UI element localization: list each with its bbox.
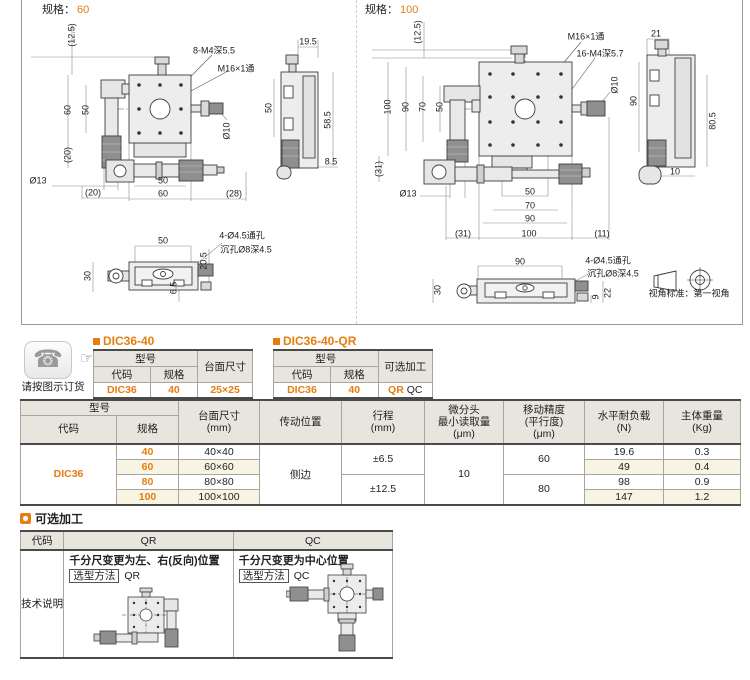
table-row: DIC36 40 40×40 侧边 ±6.5 10 60 19.6 0.3 bbox=[21, 444, 741, 460]
dim-label: 20.5 bbox=[200, 252, 209, 270]
column-header: QC bbox=[233, 531, 392, 550]
dim-label: 8-M4深5.5 bbox=[193, 47, 235, 56]
dim-label: 90 bbox=[630, 96, 639, 106]
accuracy-value: 60 bbox=[504, 444, 585, 475]
dim-label: M16×1通 bbox=[218, 65, 255, 74]
weight-value: 1.2 bbox=[664, 489, 741, 505]
column-header: 传动位置 bbox=[260, 400, 342, 444]
weight-value: 0.3 bbox=[664, 444, 741, 460]
column-header: 水平耐负载(N) bbox=[585, 400, 664, 444]
dim-label: 90 bbox=[525, 215, 535, 224]
load-value: 49 bbox=[585, 459, 664, 474]
weight-value: 0.4 bbox=[664, 459, 741, 474]
column-header: 规格 bbox=[117, 416, 179, 444]
dim-label: 30 bbox=[434, 285, 443, 295]
size-value: 40×40 bbox=[179, 444, 260, 460]
spec-value: 60 bbox=[117, 459, 179, 474]
spec100-drawing bbox=[357, 0, 743, 324]
table-row: DIC36 40 QR QC bbox=[274, 383, 433, 399]
dim-label: 50 bbox=[158, 237, 168, 246]
phone-icon: ☎ bbox=[24, 341, 72, 379]
weight-value: 0.9 bbox=[664, 474, 741, 489]
dim-label: 22 bbox=[604, 288, 613, 298]
table-row: 80 80×80 ±12.5 80 98 0.9 bbox=[21, 474, 741, 489]
dim-label: Ø10 bbox=[611, 76, 620, 93]
column-header: 主体重量(Kg) bbox=[664, 400, 741, 444]
column-header: 台面尺寸(mm) bbox=[179, 400, 260, 444]
dim-label: 50 bbox=[158, 177, 168, 186]
dim-label: 90 bbox=[402, 102, 411, 112]
optional-section-title: 可选加工 bbox=[20, 512, 83, 525]
travel-value: ±6.5 bbox=[342, 444, 425, 475]
column-header: 型号 bbox=[274, 350, 379, 367]
model-table-1: DIC36-40 型号 台面尺寸 代码 规格 DIC36 40 25×25 bbox=[93, 335, 254, 399]
dim-label: 8.5 bbox=[325, 158, 338, 167]
load-value: 19.6 bbox=[585, 444, 664, 460]
column-header: 规格 bbox=[150, 367, 197, 383]
bottom-view bbox=[457, 279, 588, 303]
dim-label: Ø13 bbox=[29, 177, 46, 186]
dim-label: (12.5) bbox=[68, 23, 77, 47]
dim-label: 16-M4深5.7 bbox=[576, 50, 623, 59]
dim-label: 沉孔Ø8深4.5 bbox=[220, 246, 272, 255]
dim-label: (20) bbox=[64, 147, 73, 163]
load-value: 147 bbox=[585, 489, 664, 505]
column-header: 代码 bbox=[21, 416, 117, 444]
dim-label: 4-Ø4.5通孔 bbox=[585, 257, 631, 266]
column-header: 代码 bbox=[274, 367, 331, 383]
phone-glyph: ☎ bbox=[33, 346, 63, 373]
order-note: 请按图示订货 bbox=[8, 379, 98, 394]
optional-table: 代码 QR QC 技术说明 千分尺变更为左、右(反向)位置 选型方法QR bbox=[20, 530, 393, 659]
dim-label: 19.5 bbox=[299, 38, 317, 47]
spec-value: 40 bbox=[117, 444, 179, 460]
dim-label: M16×1通 bbox=[568, 33, 605, 42]
dim-label: 60 bbox=[158, 190, 168, 199]
load-value: 98 bbox=[585, 474, 664, 489]
spec-value: 80 bbox=[117, 474, 179, 489]
option-values: QR QC bbox=[378, 383, 432, 399]
spec-value: 40 bbox=[150, 383, 197, 399]
dim-label: 9 bbox=[592, 294, 601, 299]
size-value: 25×25 bbox=[198, 383, 253, 399]
dim-label: 21 bbox=[651, 30, 661, 39]
dim-label: 沉孔Ø8深4.5 bbox=[587, 270, 639, 279]
column-header: 行程(mm) bbox=[342, 400, 425, 444]
qc-stage-drawing bbox=[286, 559, 398, 653]
model-table-2-title: DIC36-40-QR bbox=[273, 335, 434, 347]
dim-label: 80.5 bbox=[709, 112, 718, 130]
column-header: 规格 bbox=[330, 367, 378, 383]
column-header: 可选加工 bbox=[378, 350, 432, 383]
column-header: 移动精度(平行度)(μm) bbox=[504, 400, 585, 444]
side-view bbox=[277, 55, 318, 179]
qr-description: 千分尺变更为左、右(反向)位置 bbox=[69, 555, 228, 567]
side-view bbox=[639, 40, 695, 184]
size-value: 100×100 bbox=[179, 489, 260, 505]
code-value: DIC36 bbox=[274, 383, 331, 399]
qc-cell: 千分尺变更为中心位置 选型方法QC bbox=[233, 550, 392, 658]
optional-section: 代码 QR QC 技术说明 千分尺变更为左、右(反向)位置 选型方法QR bbox=[20, 530, 393, 659]
spec-value: 100 bbox=[117, 489, 179, 505]
dim-label: 10 bbox=[670, 168, 680, 177]
dim-label: 100 bbox=[384, 99, 393, 114]
bottom-view bbox=[108, 262, 213, 290]
dim-label: 50 bbox=[265, 103, 274, 113]
spec100-panel: 规格：100 bbox=[356, 0, 743, 324]
model-table-1-title: DIC36-40 bbox=[93, 335, 254, 347]
column-header: 代码 bbox=[21, 531, 64, 550]
travel-value: ±12.5 bbox=[342, 474, 425, 505]
view-standard-label: 视角标准：第一视角 bbox=[648, 290, 729, 299]
column-header: 微分头最小读取量(μm) bbox=[425, 400, 504, 444]
dim-label: 58.5 bbox=[324, 111, 333, 129]
table-row: 技术说明 千分尺变更为左、右(反向)位置 选型方法QR bbox=[21, 550, 393, 658]
front-view bbox=[101, 57, 224, 182]
row-label: 技术说明 bbox=[21, 550, 64, 658]
catalog-page: 规格：60 bbox=[0, 0, 750, 680]
table-row: DIC36 40 25×25 bbox=[94, 383, 253, 399]
dim-label: (11) bbox=[594, 230, 609, 239]
dim-label: 30 bbox=[84, 271, 93, 281]
pointing-hand-icon: ☞ bbox=[80, 349, 93, 367]
qr-cell: 千分尺变更为左、右(反向)位置 选型方法QR bbox=[64, 550, 233, 658]
dim-label: 100 bbox=[521, 230, 536, 239]
drawings-frame: 规格：60 bbox=[21, 0, 743, 325]
dim-label: (31) bbox=[455, 230, 471, 239]
dim-label: 50 bbox=[525, 188, 535, 197]
dim-label: (28) bbox=[226, 190, 242, 199]
dim-label: (31) bbox=[375, 161, 384, 177]
column-header: 型号 bbox=[21, 400, 179, 416]
dim-label: (20) bbox=[85, 189, 101, 198]
micro-value: 10 bbox=[425, 444, 504, 505]
model-table-2: DIC36-40-QR 型号 可选加工 代码 规格 DIC36 40 QR QC bbox=[273, 335, 434, 399]
square-bullet-icon bbox=[273, 338, 280, 345]
dim-label: 70 bbox=[419, 102, 428, 112]
dim-label: 90 bbox=[515, 258, 525, 267]
spec-table-section: 型号 台面尺寸(mm) 传动位置 行程(mm) 微分头最小读取量(μm) 移动精… bbox=[20, 399, 741, 506]
dim-label: 70 bbox=[525, 202, 535, 211]
column-header: 代码 bbox=[94, 367, 151, 383]
column-header: 台面尺寸 bbox=[198, 350, 253, 383]
dim-label: 6.5 bbox=[170, 282, 179, 295]
dim-label: 50 bbox=[82, 105, 91, 115]
qr-stage-drawing bbox=[92, 585, 204, 657]
spec-value: 40 bbox=[330, 383, 378, 399]
size-value: 60×60 bbox=[179, 459, 260, 474]
column-header: 型号 bbox=[94, 350, 198, 367]
front-view bbox=[424, 46, 605, 184]
section-bullet-icon bbox=[20, 513, 31, 524]
size-value: 80×80 bbox=[179, 474, 260, 489]
dim-label: Ø10 bbox=[223, 122, 232, 139]
qr-method: 选型方法QR bbox=[69, 570, 232, 583]
dim-label: 4-Ø4.5通孔 bbox=[219, 232, 265, 241]
spec-table: 型号 台面尺寸(mm) 传动位置 行程(mm) 微分头最小读取量(μm) 移动精… bbox=[20, 399, 741, 506]
spec60-panel: 规格：60 bbox=[22, 0, 356, 324]
dim-label: (12.5) bbox=[414, 20, 423, 44]
column-header: QR bbox=[64, 531, 233, 550]
drive-value: 侧边 bbox=[260, 444, 342, 505]
code-value: DIC36 bbox=[21, 444, 117, 505]
accuracy-value: 80 bbox=[504, 474, 585, 505]
dim-label: Ø13 bbox=[399, 190, 416, 199]
dim-label: 50 bbox=[436, 102, 445, 112]
square-bullet-icon bbox=[93, 338, 100, 345]
code-value: DIC36 bbox=[94, 383, 151, 399]
dim-label: 60 bbox=[64, 105, 73, 115]
